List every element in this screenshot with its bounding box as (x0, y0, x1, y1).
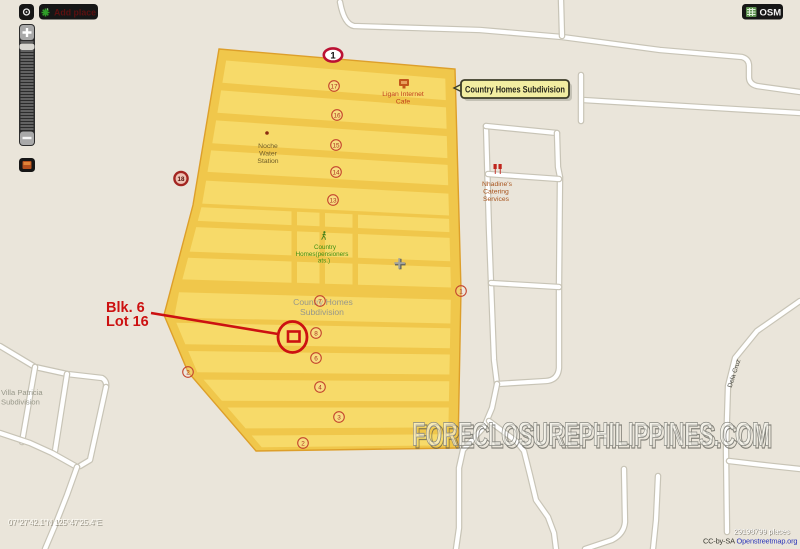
svg-text:18: 18 (178, 176, 185, 183)
svg-text:Lot 16: Lot 16 (106, 314, 149, 330)
svg-text:17: 17 (330, 83, 338, 90)
svg-text:1: 1 (459, 288, 463, 295)
svg-text:8: 8 (314, 330, 318, 337)
svg-text:07°27'42.1"N 125°47'25.4"E: 07°27'42.1"N 125°47'25.4"E (8, 518, 102, 527)
svg-text:1: 1 (330, 51, 336, 62)
svg-text:Country: Country (314, 244, 337, 251)
svg-text:Noche: Noche (258, 143, 278, 150)
svg-text:29198799 places: 29198799 places (734, 527, 790, 536)
svg-text:Country Homes Subdivision: Country Homes Subdivision (465, 85, 565, 95)
svg-text:15: 15 (332, 142, 340, 149)
svg-text:2: 2 (186, 369, 190, 376)
svg-text:2: 2 (301, 440, 305, 447)
svg-text:ats.): ats.) (318, 258, 330, 265)
svg-text:13: 13 (329, 197, 337, 204)
svg-text:Villa Patricia: Villa Patricia (1, 388, 43, 397)
svg-text:OSM: OSM (760, 8, 782, 19)
svg-text:14: 14 (332, 169, 340, 176)
svg-text:4: 4 (318, 384, 322, 391)
svg-text:Openstreetmap.org: Openstreetmap.org (737, 537, 798, 546)
svg-text:Station: Station (257, 158, 278, 165)
svg-text:3: 3 (337, 414, 341, 421)
svg-text:FORECLOSUREPHILIPPINES.COM: FORECLOSUREPHILIPPINES.COM (412, 416, 770, 453)
svg-text:6: 6 (314, 355, 318, 362)
svg-text:Ligan Internet: Ligan Internet (382, 91, 424, 98)
svg-text:Cafe: Cafe (396, 99, 411, 106)
svg-text:7: 7 (318, 298, 322, 305)
svg-text:Nhadine's: Nhadine's (482, 181, 513, 188)
svg-text:16: 16 (333, 112, 341, 119)
svg-text:Subdivision: Subdivision (1, 398, 40, 407)
svg-text:Services: Services (483, 196, 510, 203)
svg-text:Catering: Catering (483, 189, 509, 196)
svg-text:Add place: Add place (54, 7, 96, 17)
svg-text:Water: Water (259, 151, 278, 158)
svg-text:Subdivision: Subdivision (300, 307, 344, 317)
svg-text:CC-by-SA: CC-by-SA (703, 537, 735, 546)
